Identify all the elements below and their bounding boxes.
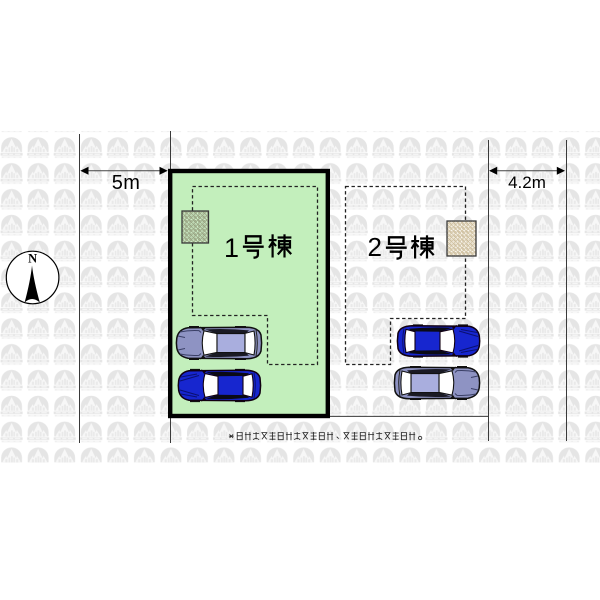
svg-text:4.2m: 4.2m [508,173,546,192]
svg-text:1: 1 [224,233,239,263]
svg-text:N: N [28,252,37,266]
svg-text:2: 2 [368,232,382,262]
svg-text:5m: 5m [112,172,141,194]
